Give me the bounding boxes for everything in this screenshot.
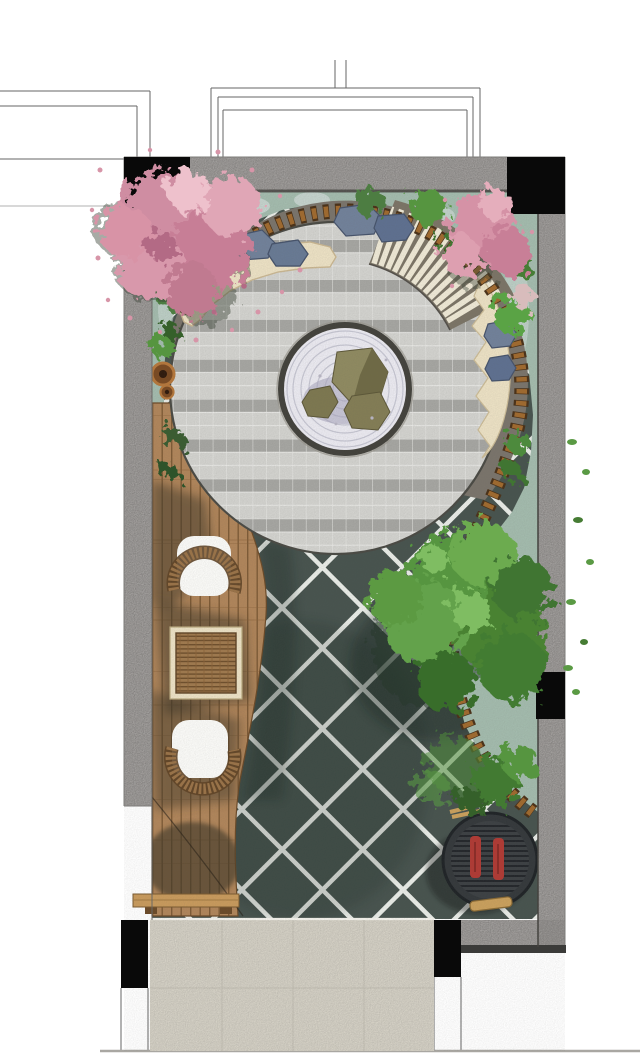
plan-drawing	[0, 0, 640, 1058]
garden-plan-canvas	[0, 0, 640, 1058]
column-top-right	[507, 157, 565, 214]
dry-plant	[512, 286, 536, 310]
column-bottom-left	[121, 920, 148, 988]
column-bottom-right	[434, 920, 461, 977]
wall-bottom-cap	[456, 945, 566, 953]
